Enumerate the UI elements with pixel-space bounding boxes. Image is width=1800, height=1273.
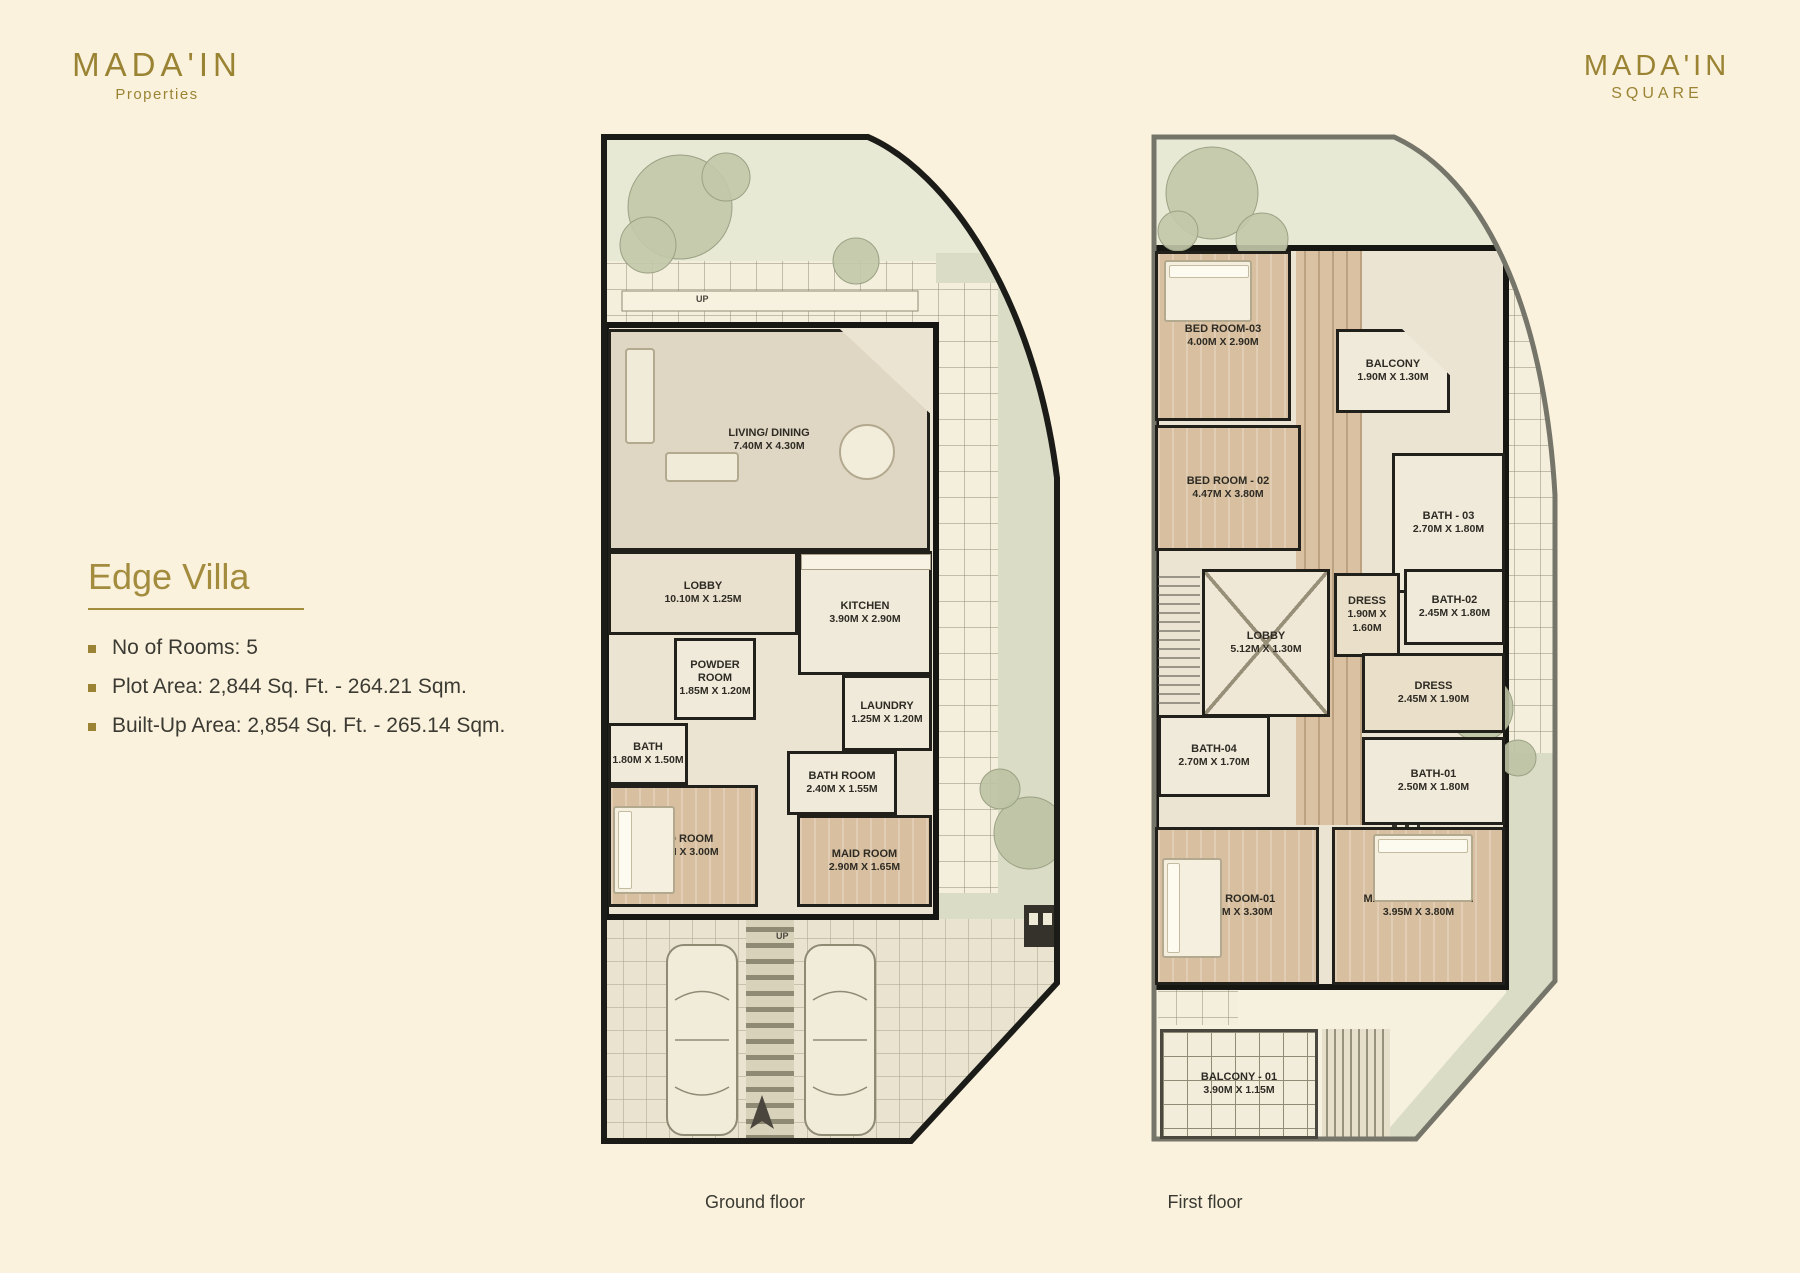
entry-step	[622, 291, 918, 311]
bullet-square-icon	[88, 684, 96, 692]
bullet-square-icon	[88, 645, 96, 653]
room-laundry: LAUNDRY 1.25M X 1.20M	[842, 675, 932, 751]
room-master-bedroom: MASTER BED ROOM 3.95M X 3.80M	[1332, 827, 1505, 985]
up-label: UP	[696, 294, 709, 304]
car-icon	[805, 945, 875, 1135]
room-bathroom: BATH ROOM 2.40M X 1.55M	[787, 751, 897, 815]
dining-table-icon	[839, 424, 895, 480]
brand-name: MADA'IN	[1562, 50, 1752, 83]
room-bath: BATH 1.80M X 1.50M	[608, 723, 688, 785]
room-lobby: LOBBY 5.12M X 1.30M	[1202, 569, 1330, 717]
room-dress-1: DRESS 1.90M X 1.60M	[1334, 573, 1400, 657]
villa-info: Edge Villa No of Rooms: 5 Plot Area: 2,8…	[88, 556, 558, 745]
brand-name: MADA'IN	[52, 46, 262, 84]
first-floor-caption: First floor	[1110, 1192, 1300, 1213]
bed-icon	[1373, 834, 1473, 902]
room-bedroom-03: BED ROOM-03 4.00M X 2.90M	[1155, 251, 1291, 421]
room-bath-02: BATH-02 2.45M X 1.80M	[1404, 569, 1505, 645]
ground-floor-caption: Ground floor	[640, 1192, 870, 1213]
room-kitchen: KITCHEN 3.90M X 2.90M	[798, 551, 932, 675]
fact-plot-area: Plot Area: 2,844 Sq. Ft. - 264.21 Sqm.	[88, 667, 558, 706]
room-bedroom: BED ROOM 3.45M X 3.00M	[608, 785, 758, 907]
brand-properties-logo: MADA'IN Properties	[52, 46, 262, 103]
kitchen-counter-icon	[801, 554, 931, 570]
room-lobby: LOBBY 10.10M X 1.25M	[608, 551, 798, 635]
sofa-icon	[625, 348, 655, 444]
up-label: UP	[776, 931, 789, 941]
page-title: Edge Villa	[88, 556, 304, 610]
bullet-square-icon	[88, 723, 96, 731]
villa-facts-list: No of Rooms: 5 Plot Area: 2,844 Sq. Ft. …	[88, 628, 558, 745]
side-patio-tiles	[1506, 245, 1555, 755]
brochure-page: MADA'IN Properties MADA'IN SQUARE Edge V…	[0, 0, 1800, 1273]
first-floor-plan: BED ROOM-03 4.00M X 2.90M BALCONY 1.90M …	[1150, 133, 1560, 1151]
driveway-ramp	[746, 919, 794, 1143]
bed-icon	[1164, 260, 1252, 322]
entry-steps	[1158, 989, 1238, 1025]
brand-tagline: Properties	[52, 86, 262, 103]
ground-floor-plan: LIVING/ DINING 7.40M X 4.30M LOBBY 10.10…	[600, 133, 1062, 1151]
room-bedroom-02: BED ROOM - 02 4.47M X 3.80M	[1155, 425, 1301, 551]
room-powder: POWDER ROOM 1.85M X 1.20M	[674, 638, 756, 720]
fact-rooms: No of Rooms: 5	[88, 628, 558, 667]
bed-icon	[613, 806, 675, 894]
pergola-deck	[1322, 1029, 1390, 1141]
room-maid: MAID ROOM 2.90M X 1.65M	[797, 815, 932, 907]
fact-builtup-area: Built-Up Area: 2,854 Sq. Ft. - 265.14 Sq…	[88, 706, 558, 745]
bed-icon	[1162, 858, 1222, 958]
room-bath-01: BATH-01 2.50M X 1.80M	[1362, 737, 1505, 825]
brand-tagline: SQUARE	[1562, 85, 1752, 103]
room-bath-04: BATH-04 2.70M X 1.70M	[1158, 715, 1270, 797]
room-balcony-01: BALCONY - 01 3.90M X 1.15M	[1160, 1029, 1318, 1139]
room-dress-2: DRESS 2.45M X 1.90M	[1362, 653, 1505, 733]
car-icon	[667, 945, 737, 1135]
utility-gate	[1024, 905, 1054, 947]
brand-square-logo: MADA'IN SQUARE	[1562, 50, 1752, 103]
sofa-icon	[665, 452, 739, 482]
room-bedroom-01: BED ROOM-01 4.00M X 3.30M	[1155, 827, 1319, 985]
tree-icon	[833, 238, 879, 284]
